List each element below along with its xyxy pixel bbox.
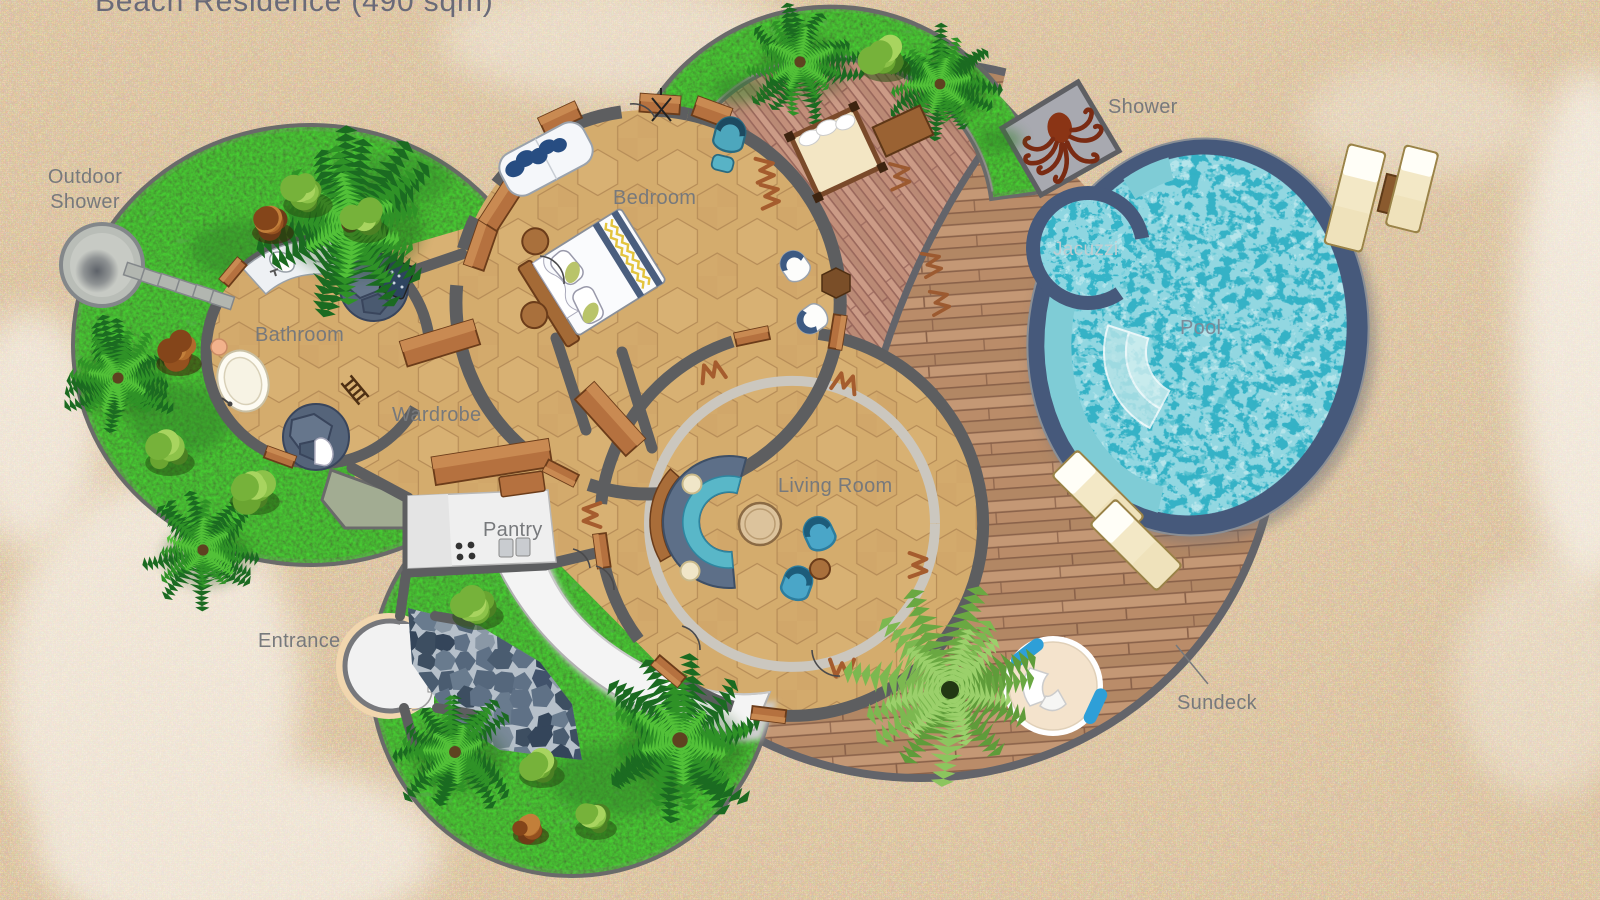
svg-text:Sundeck: Sundeck [1177, 692, 1258, 714]
svg-text:Pantry: Pantry [483, 519, 543, 541]
svg-text:Entrance: Entrance [258, 630, 340, 652]
svg-text:Pool: Pool [1180, 317, 1221, 339]
svg-text:Jacuzzi: Jacuzzi [1053, 239, 1118, 260]
svg-text:Bedroom: Bedroom [613, 187, 696, 209]
svg-text:Bathroom: Bathroom [255, 324, 344, 346]
svg-text:Beach Residence (490 sqm): Beach Residence (490 sqm) [95, 0, 494, 18]
svg-text:Shower: Shower [1108, 96, 1178, 118]
svg-text:Outdoor: Outdoor [48, 166, 122, 188]
svg-text:Living Room: Living Room [778, 475, 892, 497]
svg-text:Shower: Shower [50, 191, 120, 213]
svg-text:Wardrobe: Wardrobe [392, 404, 481, 426]
